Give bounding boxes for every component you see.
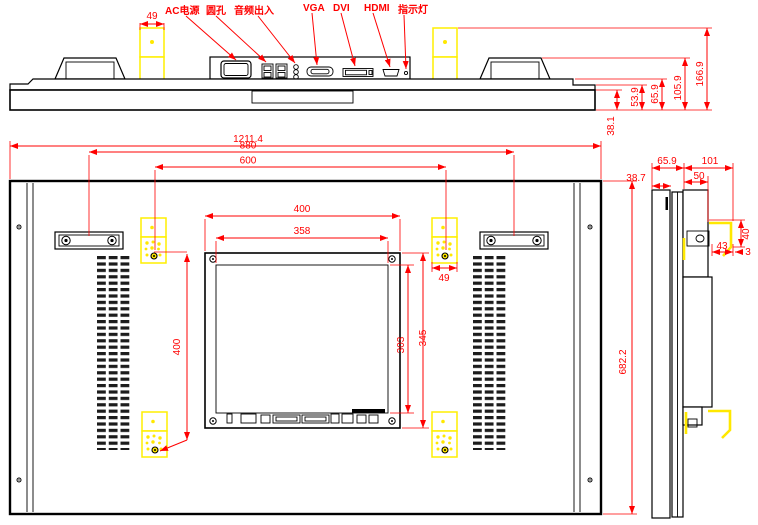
label-indicator: 指示灯	[398, 3, 428, 16]
label-ac-power: AC电源	[165, 4, 199, 17]
electronics-box	[205, 253, 400, 428]
dim-handle-span: 880	[240, 141, 257, 152]
dim-side-box: 50	[693, 171, 705, 182]
vesa-pad-top-left	[141, 218, 166, 263]
dim-vesa-horizontal: 600	[240, 156, 257, 167]
cad-drawing-canvas: AC电源 圆孔 音频出入 VGA DVI HDMI 指示灯 49 38.1 53…	[0, 0, 758, 525]
dimension-drawing: AC电源 圆孔 音频出入 VGA DVI HDMI 指示灯 49 38.1 53…	[0, 0, 758, 525]
label-vga: VGA	[303, 3, 325, 14]
handle-left	[55, 58, 125, 79]
vent-grid-right	[473, 256, 507, 450]
handle-right	[480, 58, 550, 79]
dim-handle-height: 105.9	[673, 75, 684, 100]
label-dvi: DVI	[333, 3, 350, 14]
label-round-hole: 圆孔	[206, 4, 226, 17]
side-back-box-mid	[683, 277, 712, 407]
dim-side-back: 101	[702, 156, 719, 167]
vesa-pad-top-right	[432, 218, 457, 263]
dim-overall-height: 682.2	[618, 349, 629, 374]
dim-edge-height: 38.1	[606, 116, 617, 136]
top-view	[10, 28, 595, 110]
top-body-lower-strip	[10, 90, 595, 110]
dim-body-height: 65.9	[650, 84, 661, 104]
vesa-pad-bottom-right	[432, 412, 457, 457]
wall-bracket-top-right	[433, 28, 457, 85]
side-front-panel	[652, 190, 670, 518]
side-view	[652, 190, 731, 518]
wall-bracket-top-left	[140, 28, 164, 85]
dim-hook-gap: 3	[745, 247, 751, 258]
dim-box-inner-height: 303	[396, 336, 407, 353]
label-hdmi: HDMI	[364, 3, 390, 14]
dim-overall-height-top: 166.9	[695, 61, 706, 86]
dim-pad-width: 49	[438, 273, 450, 284]
dim-side-body: 65.9	[657, 156, 677, 167]
dim-box-width: 400	[294, 204, 311, 215]
dim-step-height: 53.9	[630, 87, 641, 107]
dim-hook-width: 43	[716, 241, 728, 252]
dim-box-height: 345	[418, 329, 429, 346]
vent-grid-left	[97, 256, 131, 450]
dim-box-inner-width: 358	[294, 226, 311, 237]
connector-panel	[210, 57, 410, 79]
dim-side-front: 38.7	[626, 173, 646, 184]
top-body-upper-strip	[10, 79, 595, 90]
dim-bracket-width: 49	[146, 11, 158, 22]
label-audio-io: 音频出入	[234, 4, 274, 17]
dim-vesa-vertical: 400	[172, 338, 183, 355]
ac-power-inlet	[221, 61, 251, 78]
dim-hook-height: 40	[741, 228, 752, 240]
vesa-pad-bottom-left	[142, 412, 167, 457]
